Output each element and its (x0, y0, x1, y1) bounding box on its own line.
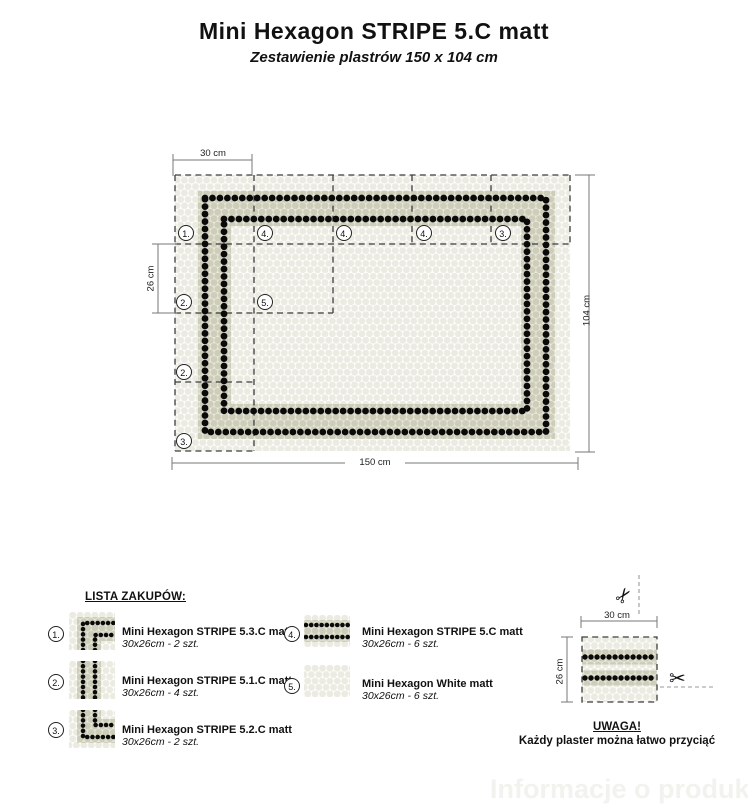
dim-left-label: 26 cm (146, 254, 157, 304)
dim-right-label: 104 cm (582, 286, 593, 336)
mosaic-layout-diagram (140, 145, 610, 480)
legend-item-name: Mini Hexagon White matt (362, 678, 493, 690)
page-title: Mini Hexagon STRIPE 5.C matt (0, 18, 748, 45)
warning-title: UWAGA! (517, 721, 717, 733)
legend-item-qty: 30x26cm - 2 szt. (122, 736, 199, 748)
swatch-white-matt (304, 665, 350, 697)
legend-num: 4. (284, 626, 300, 642)
legend-item-qty: 30x26cm - 4 szt. (122, 687, 199, 699)
swatch-stripe-5-2c (69, 710, 115, 748)
watermark: Informacje o produkcie (490, 774, 748, 805)
swatch-stripe-5c (304, 615, 350, 647)
cut-dim-left-label: 26 cm (555, 647, 566, 697)
legend-item-qty: 30x26cm - 6 szt. (362, 638, 439, 650)
legend-num: 5. (284, 678, 300, 694)
swatch-stripe-5-3c (69, 612, 115, 650)
inner-white-field (231, 226, 521, 404)
sheet-marker: 3. (176, 433, 192, 449)
cut-dim-top-label: 30 cm (592, 610, 642, 621)
legend-num: 2. (48, 674, 64, 690)
shopping-list-heading: LISTA ZAKUPÓW: (85, 591, 186, 603)
legend-item-name: Mini Hexagon STRIPE 5.3.C matt (122, 626, 292, 638)
sheet-marker: 4. (257, 225, 273, 241)
warning-note: UWAGA! Każdy plaster można łatwo przycią… (517, 721, 717, 747)
scissors-icon: ✂ (669, 669, 686, 689)
legend-item-qty: 30x26cm - 6 szt. (362, 690, 439, 702)
legend-num: 1. (48, 626, 64, 642)
legend-num: 3. (48, 722, 64, 738)
sheet-marker: 3. (495, 225, 511, 241)
legend-item-qty: 30x26cm - 2 szt. (122, 638, 199, 650)
sheet-marker: 1. (178, 225, 194, 241)
cut-sheet (582, 637, 657, 702)
sheet-marker: 5. (257, 294, 273, 310)
sheet-marker: 2. (176, 294, 192, 310)
legend-item-name: Mini Hexagon STRIPE 5.2.C matt (122, 724, 292, 736)
sheet-marker: 4. (336, 225, 352, 241)
sheet-marker: 4. (416, 225, 432, 241)
dim-bottom-label: 150 cm (345, 457, 405, 468)
swatch-stripe-5-1c (69, 661, 115, 699)
dim-top-label: 30 cm (188, 148, 238, 159)
sheet-marker: 2. (176, 364, 192, 380)
page-subtitle: Zestawienie plastrów 150 x 104 cm (0, 49, 748, 66)
warning-text: Każdy plaster można łatwo przyciąć (517, 735, 717, 747)
legend-item-name: Mini Hexagon STRIPE 5.1.C matt (122, 675, 292, 687)
legend-item-name: Mini Hexagon STRIPE 5.C matt (362, 626, 523, 638)
